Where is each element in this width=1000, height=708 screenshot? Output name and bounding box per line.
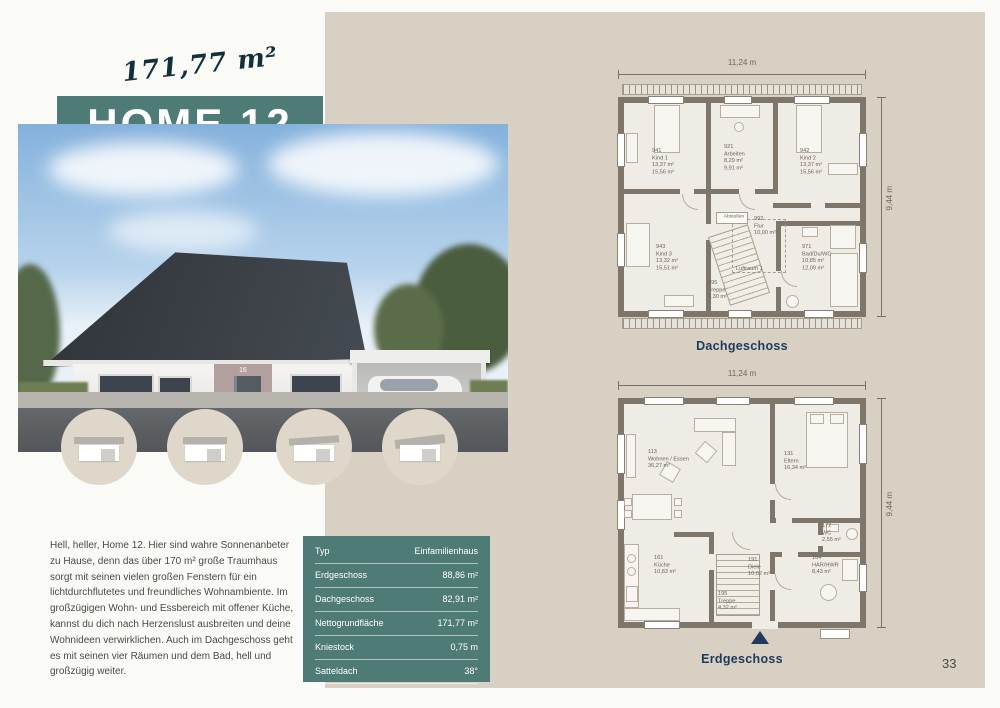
spec-value: Einfamilienhaus: [414, 540, 478, 563]
wall: [706, 194, 711, 224]
entrance-opening: [752, 621, 778, 629]
wall: [770, 518, 776, 523]
description-text: Hell, heller, Home 12. Hier sind wahre S…: [50, 538, 294, 680]
cloud-shape: [108, 210, 258, 252]
door-swing: [732, 532, 750, 550]
brochure-page: { "page_number": "33", "hero": { "area_s…: [0, 0, 1000, 708]
wall: [709, 570, 714, 622]
spec-label: Erdgeschoss: [315, 564, 367, 587]
furniture-sideboard: [626, 434, 636, 478]
entrance-arrow-icon: [751, 631, 769, 644]
window: [648, 310, 684, 318]
page-number: 33: [942, 656, 956, 671]
furniture-bathtub: [830, 253, 858, 307]
room-label-kueche: 161Küche10,83 m²: [654, 554, 676, 576]
cloud-shape: [48, 142, 238, 196]
spec-label: Nettogrundfläche: [315, 612, 384, 635]
dg-width-dimension: 11,24 m: [618, 58, 866, 67]
wall: [674, 532, 714, 537]
room-label-luftraum: Luftraum 1: [736, 265, 763, 272]
door-swing: [739, 194, 755, 210]
eg-caption: Erdgeschoss: [618, 652, 866, 666]
room-label-bad: 971Bad/Du/WC10,85 m²12,09 m²: [802, 243, 831, 272]
furniture-wardrobe: [626, 133, 638, 163]
roof-variant-icon-3: [276, 409, 352, 485]
spec-table: TypEinfamilienhaus Erdgeschoss88,86 m² D…: [303, 536, 490, 682]
wall: [711, 189, 739, 194]
furniture-chair: [624, 510, 632, 518]
wall: [755, 189, 778, 194]
mini-garage: [422, 449, 436, 461]
house-photo: 16 allkauf haus: [18, 124, 508, 452]
door-swing: [682, 194, 698, 210]
spec-row: Satteldach38°: [315, 660, 478, 684]
house-number: 16: [239, 367, 247, 374]
dimension-line: [881, 398, 882, 628]
spec-value: 171,77 m²: [437, 612, 478, 635]
window: [644, 621, 680, 629]
house-roof: [40, 242, 370, 372]
wall: [770, 557, 775, 574]
kitchen-hob: [627, 567, 636, 576]
window: [617, 133, 625, 167]
window: [648, 96, 684, 104]
furniture-chair: [624, 498, 632, 506]
window: [804, 310, 834, 318]
furniture-desk: [720, 105, 760, 118]
window: [644, 397, 684, 405]
window: [716, 397, 750, 405]
furniture-sofa: [694, 418, 736, 432]
room-label-kind2: 942Kind 213,37 m²15,56 m²: [800, 147, 822, 176]
furniture-chair: [674, 498, 682, 506]
dimension-line: [881, 97, 882, 317]
roof-overhang-hatch: [622, 318, 862, 329]
furniture-pillow: [810, 414, 824, 424]
door-swing: [781, 271, 797, 287]
window: [859, 133, 867, 167]
dimension-tick: [865, 381, 866, 390]
spec-value: 82,91 m²: [442, 588, 478, 611]
spec-row: Erdgeschoss88,86 m²: [315, 564, 478, 588]
closet-box: Abstellen: [716, 212, 748, 224]
washing-machine: [820, 584, 837, 601]
eg-floorplan: 113Wohnen / Essen36,27 m² 131Eltern16,34…: [618, 398, 866, 628]
spec-value: 38°: [464, 660, 478, 683]
furniture-dining-table: [632, 494, 672, 520]
room-label-eltern: 131Eltern16,34 m²: [784, 450, 806, 472]
furniture-shower: [830, 225, 856, 249]
wall: [624, 189, 680, 194]
window: [859, 243, 867, 273]
room-label-kind1: 941Kind 113,37 m²15,56 m²: [652, 147, 674, 176]
kitchen-hob: [627, 554, 636, 563]
wall: [770, 404, 775, 484]
furniture-toilet: [786, 295, 799, 308]
wall: [773, 103, 778, 194]
room-label-wc: 172WC2,55 m²: [822, 522, 841, 544]
window: [859, 424, 867, 464]
room-label-diele: 191Diele10,02 m²: [748, 556, 770, 578]
room-label-wohnen: 113Wohnen / Essen36,27 m²: [648, 448, 689, 470]
wall: [706, 103, 711, 191]
furniture-sink: [802, 227, 818, 237]
dimension-tick: [877, 97, 886, 98]
kitchen-sink: [626, 586, 638, 602]
furniture-chair: [674, 510, 682, 518]
spec-label: Satteldach: [315, 660, 358, 683]
eg-height-dimension: 9,44 m: [885, 492, 894, 516]
furniture-bed: [654, 105, 680, 153]
door-swing: [775, 484, 791, 500]
spec-label: Dachgeschoss: [315, 588, 374, 611]
window: [724, 96, 752, 104]
furniture-chair: [734, 122, 744, 132]
dg-caption: Dachgeschoss: [618, 339, 866, 353]
mini-roof: [74, 437, 124, 444]
furniture-bed: [626, 223, 650, 267]
spec-label: Typ: [315, 540, 330, 563]
room-label-treppe: 995Treppe4,30 m²: [708, 279, 727, 301]
dg-floorplan: 941Kind 113,37 m²15,56 m² 921Arbeiten8,2…: [618, 97, 866, 317]
dimension-line: [618, 74, 866, 75]
furniture-pillow: [830, 414, 844, 424]
wall: [709, 537, 714, 554]
spec-label: Kniestock: [315, 636, 354, 659]
room-label-kind3: 943Kind 313,32 m²15,51 m²: [656, 243, 678, 272]
dimension-tick: [618, 381, 619, 390]
furniture-cabinet: [842, 559, 858, 581]
spec-value: 0,75 m: [450, 636, 478, 659]
window: [617, 434, 625, 474]
dimension-tick: [877, 316, 886, 317]
furniture-table: [695, 441, 718, 464]
dg-height-dimension: 9,44 m: [885, 186, 894, 210]
wall: [776, 287, 781, 311]
spec-row: TypEinfamilienhaus: [315, 540, 478, 564]
wall: [773, 203, 811, 208]
roof-variant-icon-4: [382, 409, 458, 485]
eg-width-dimension: 11,24 m: [618, 369, 866, 378]
door-swing: [775, 574, 791, 590]
spec-row: Dachgeschoss82,91 m²: [315, 588, 478, 612]
room-label-hwr: 164HAR/HWR8,43 m²: [812, 554, 839, 576]
furniture-toilet: [846, 528, 858, 540]
spec-row: Kniestock0,75 m: [315, 636, 478, 660]
spec-row: Nettogrundfläche171,77 m²: [315, 612, 478, 636]
dimension-tick: [877, 627, 886, 628]
dimension-line: [618, 385, 866, 386]
mini-garage: [207, 449, 221, 461]
dimension-tick: [618, 70, 619, 79]
roof-overhang-hatch: [622, 84, 862, 95]
window: [728, 310, 752, 318]
cloud-shape: [268, 132, 498, 196]
mini-garage: [101, 449, 115, 461]
room-label-arbeiten: 921Arbeiten8,29 m²9,91 m²: [724, 143, 745, 172]
mini-roof: [183, 437, 227, 444]
furniture-dresser: [828, 163, 858, 175]
roof-variant-icon-2: [167, 409, 243, 485]
furniture-sofa: [722, 432, 736, 466]
entrance-step: [820, 629, 850, 639]
wall: [825, 203, 860, 208]
dimension-tick: [865, 70, 866, 79]
window: [794, 397, 834, 405]
furniture-dresser: [664, 295, 694, 307]
mini-garage: [316, 449, 330, 461]
kitchen-counter: [624, 608, 680, 621]
carport-roof: [350, 350, 490, 363]
car-window: [380, 379, 438, 391]
window: [794, 96, 830, 104]
furniture-bed: [796, 105, 822, 153]
wall: [770, 590, 775, 622]
window: [859, 564, 867, 592]
spec-value: 88,86 m²: [442, 564, 478, 587]
window: [617, 233, 625, 267]
area-script-text: 171,77 m²: [121, 42, 280, 88]
room-label-treppe: 195Treppe4,32 m²: [718, 590, 737, 612]
dimension-tick: [877, 398, 886, 399]
room-label-flur: 992Flur10,00 m²: [754, 215, 776, 237]
roof-variant-icon-1: [61, 409, 137, 485]
